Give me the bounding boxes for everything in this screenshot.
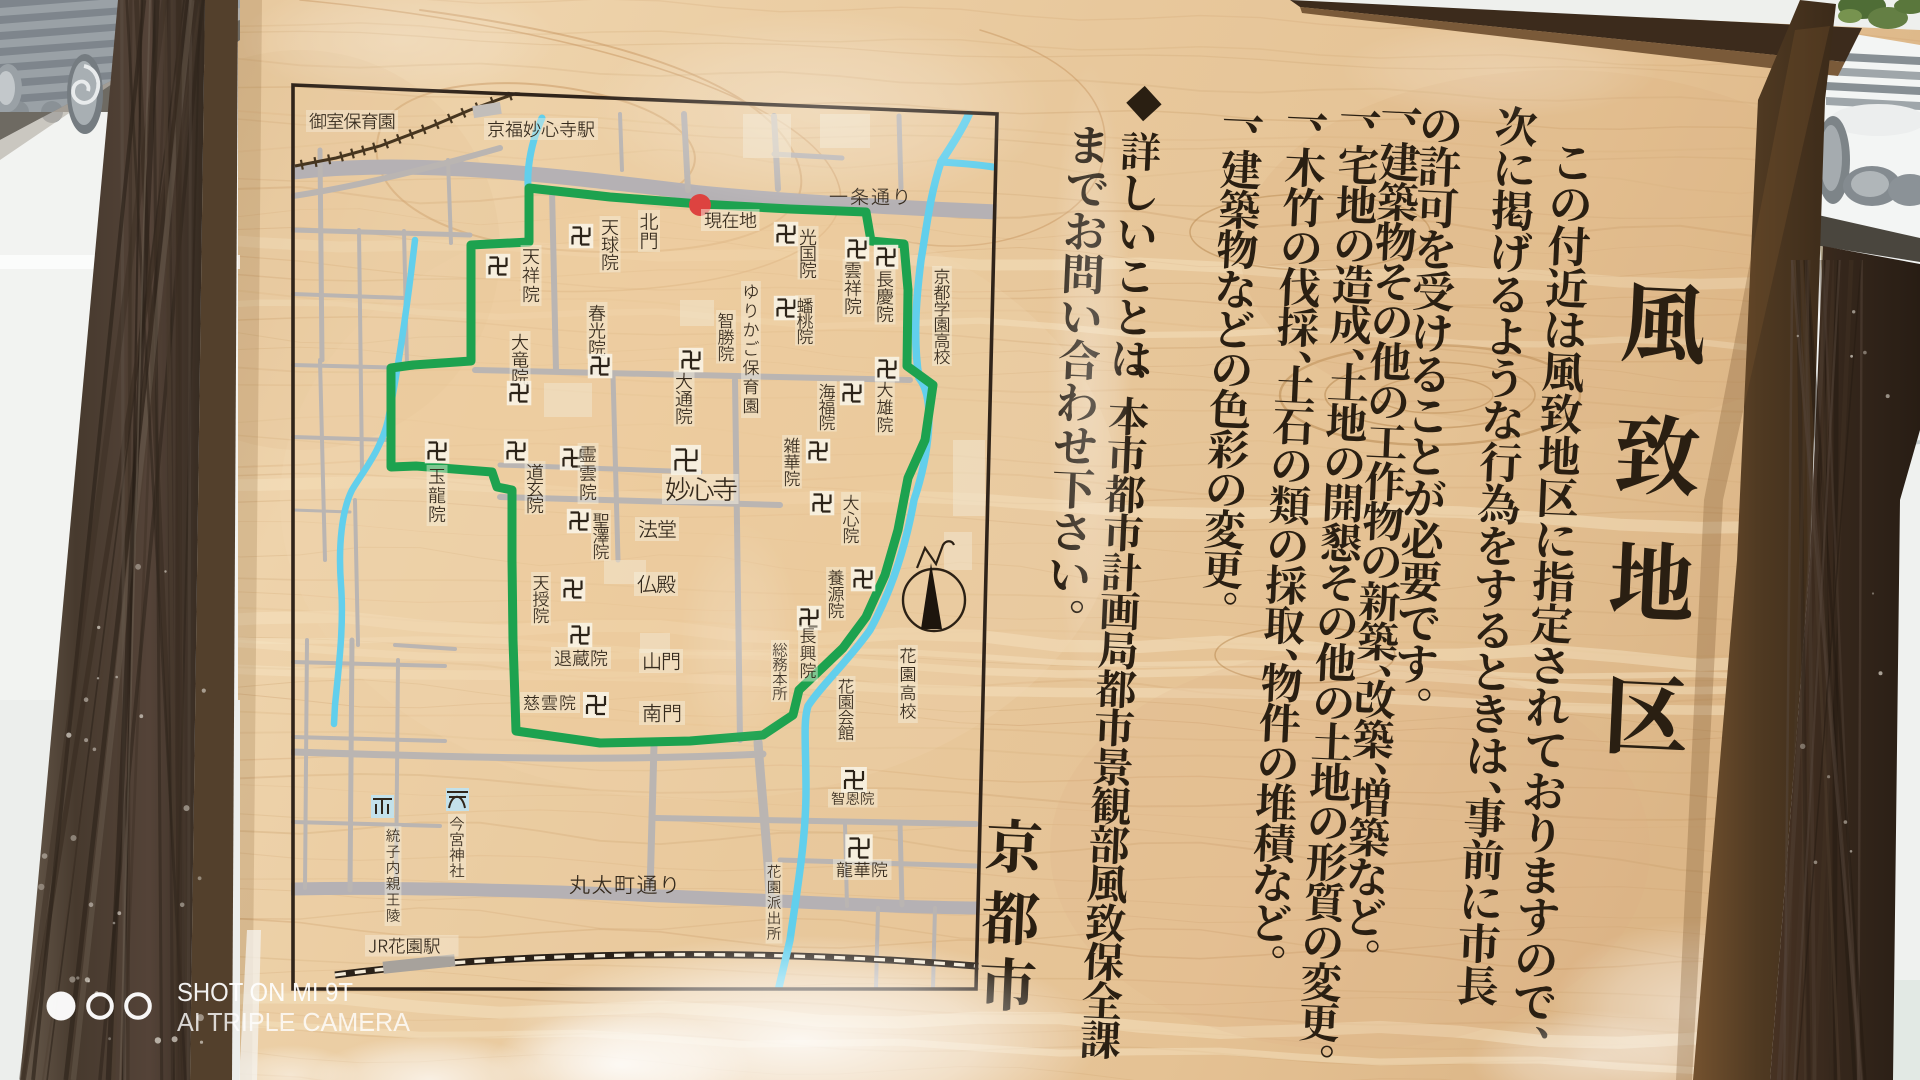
svg-text:AI TRIPLE CAMERA: AI TRIPLE CAMERA <box>177 1007 411 1037</box>
svg-text:SHOT ON MI 9T: SHOT ON MI 9T <box>177 977 353 1007</box>
